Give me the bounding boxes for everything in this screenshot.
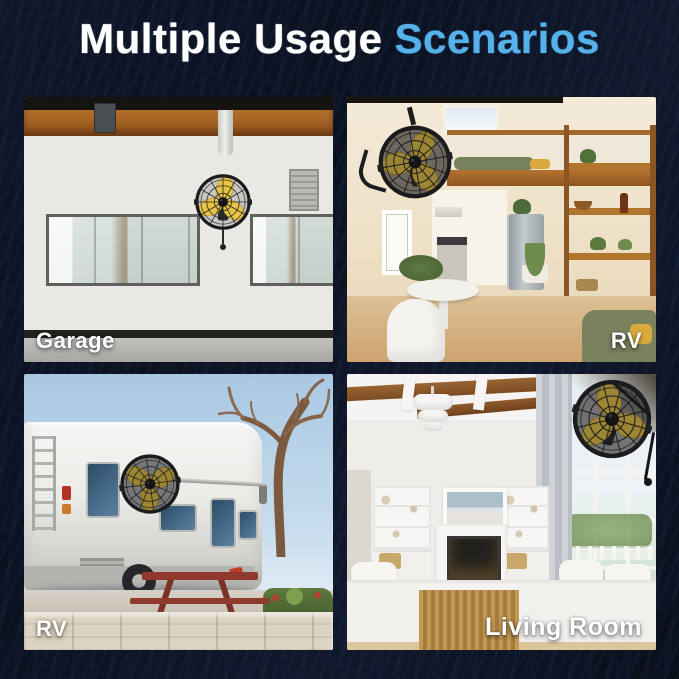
picnic-bench: [130, 598, 270, 604]
shelf-plant: [618, 239, 632, 250]
chandelier-tier: [423, 422, 443, 431]
shelf-plant: [580, 149, 596, 163]
shelf-plant: [590, 237, 606, 250]
rv-interior-ceiling-edge: [347, 97, 563, 103]
garage-wood-beam: [24, 110, 333, 136]
fireplace-firebox: [447, 536, 501, 582]
panel-living-room: Living Room: [347, 374, 656, 650]
garage-duct: [218, 110, 233, 156]
scenario-grid: Garage RV: [24, 97, 656, 650]
rv-interior-loft-mattress: [454, 157, 534, 170]
chandelier: [411, 386, 455, 432]
builtin-shelves-left: [373, 486, 431, 550]
motorhome-taillight-amber: [62, 504, 71, 514]
rv-interior-palm-plant: [522, 243, 548, 283]
window-greenery: [566, 514, 652, 548]
panel-label-living-room: Living Room: [485, 613, 642, 642]
motorhome-door-window: [210, 498, 236, 548]
fan-svg: [115, 449, 185, 519]
motorhome-window: [238, 510, 258, 540]
rv-interior-loft-pillow: [530, 159, 550, 169]
garage-window-right: [250, 214, 333, 286]
title-text-white: Multiple Usage: [79, 15, 382, 62]
garage-window-left: [46, 214, 200, 286]
concrete-block-wall: [24, 612, 333, 650]
panel-rv-interior: RV: [347, 97, 656, 362]
fan-svg: [194, 173, 252, 231]
fan-pull-chain-ball: [220, 244, 226, 250]
panel-label-garage: Garage: [36, 328, 115, 354]
plant-on-fridge: [513, 199, 531, 214]
chandelier-rod: [431, 386, 434, 394]
chandelier-tier: [418, 410, 448, 422]
garage-electrical-panel: [94, 103, 116, 133]
plant-on-table: [399, 255, 443, 281]
wall-mounted-fan: [115, 449, 185, 519]
motorhome-taillight-red: [62, 486, 71, 500]
wicker-basket: [505, 553, 527, 569]
panel-rv-exterior: RV: [24, 374, 333, 650]
rv-interior-range: [437, 237, 467, 283]
shelf-bottle: [620, 193, 628, 213]
motorhome-mirror: [259, 484, 267, 504]
fan-mount-knob: [644, 478, 652, 486]
panel-label-rv-interior: RV: [611, 328, 642, 354]
shelf-basket: [576, 279, 598, 291]
garage-ceiling: [24, 97, 333, 110]
chandelier-tier: [413, 394, 453, 410]
rv-interior-round-table: [407, 279, 479, 301]
motorhome-window: [86, 462, 120, 518]
garage-vent-grille: [289, 169, 319, 211]
page-title: Multiple UsageScenarios: [0, 14, 679, 64]
picnic-table: [142, 572, 258, 580]
fan-pull-chain: [222, 229, 224, 244]
motorhome-rear-ladder: [32, 436, 56, 531]
title-text-accent: Scenarios: [395, 15, 600, 62]
panel-garage: Garage: [24, 97, 333, 362]
wall-mounted-fan: [194, 173, 252, 231]
rv-interior-white-chair: [387, 299, 445, 362]
rv-interior-range-hood: [435, 207, 462, 217]
panel-label-rv-exterior: RV: [36, 616, 67, 642]
porch-railing: [564, 546, 654, 560]
